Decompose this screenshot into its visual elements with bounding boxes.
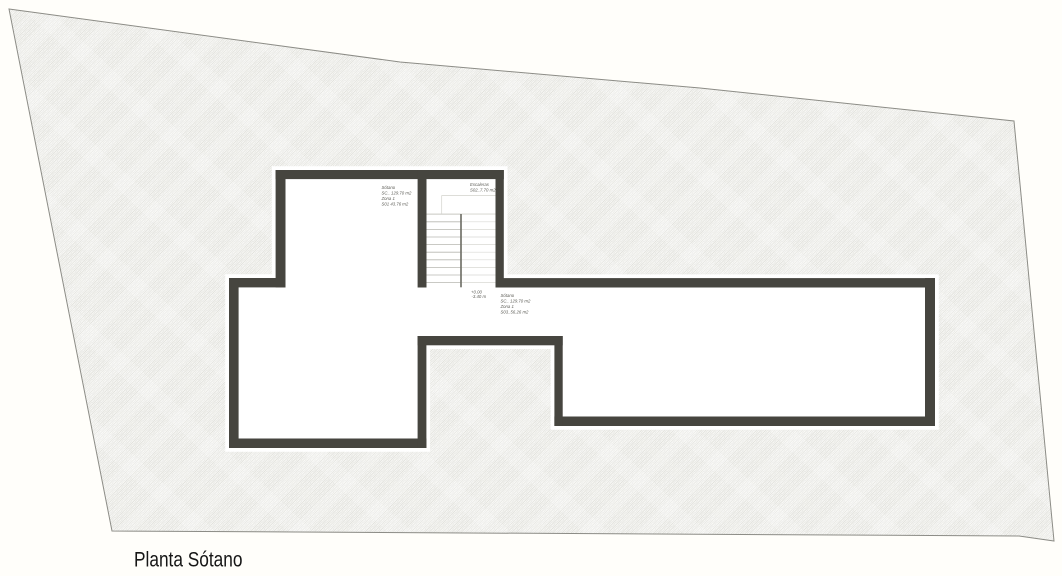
svg-text:Sótano: Sótano (501, 293, 515, 298)
svg-text:Zona 1: Zona 1 (381, 196, 396, 201)
svg-text:-3.40 m: -3.40 m (472, 294, 487, 299)
svg-text:S02_7.70 m2: S02_7.70 m2 (470, 188, 496, 193)
svg-text:S03_56.26 m2: S03_56.26 m2 (501, 310, 530, 315)
svg-text:SC_ 129.70 m2: SC_ 129.70 m2 (501, 299, 531, 304)
svg-text:S01 43.76 m2: S01 43.76 m2 (382, 202, 409, 207)
svg-text:Zona 1: Zona 1 (500, 304, 515, 309)
svg-text:Sótano: Sótano (382, 185, 396, 190)
svg-text:Escaleras: Escaleras (470, 182, 490, 187)
svg-text:SC_ 129.70 m2: SC_ 129.70 m2 (382, 191, 412, 196)
svg-text:Planta Sótano: Planta Sótano (134, 547, 243, 571)
